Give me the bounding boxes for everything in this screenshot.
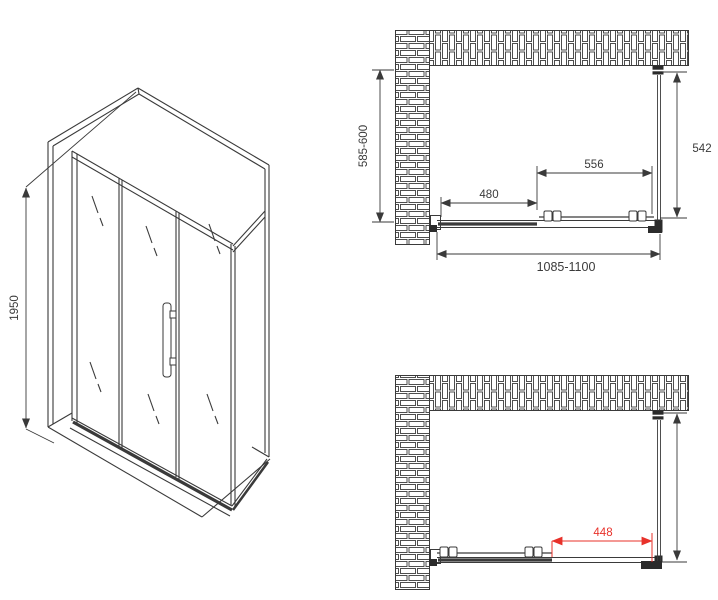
door-handle bbox=[163, 303, 176, 377]
glass-reflection-icon bbox=[92, 196, 103, 226]
glass-reflection-icon bbox=[209, 224, 220, 254]
iso-view: 1950 bbox=[9, 88, 270, 517]
wall-left bbox=[396, 376, 430, 590]
enclosure-plan bbox=[429, 66, 664, 234]
iso-tray bbox=[48, 418, 270, 517]
glass-reflection-icon bbox=[90, 362, 101, 392]
wall-left bbox=[396, 31, 430, 245]
drawing-svg: 1950 bbox=[0, 0, 718, 600]
roller bbox=[440, 547, 457, 557]
wall-back bbox=[430, 376, 689, 411]
dim-label-448: 448 bbox=[593, 527, 612, 539]
dim-side-unlabeled bbox=[662, 413, 687, 562]
dim-door-556: 556 bbox=[537, 159, 652, 214]
glass-reflection-icon bbox=[146, 226, 157, 256]
glass-reflection-icon bbox=[148, 394, 159, 424]
roller bbox=[525, 547, 542, 557]
open-plan-view: 448 bbox=[396, 376, 689, 590]
dim-label-480: 480 bbox=[479, 189, 498, 201]
glass-reflection-icon bbox=[207, 394, 218, 424]
iso-walls bbox=[48, 88, 269, 457]
dim-side-542: 542 bbox=[660, 72, 712, 218]
dim-depth-585-600: 585-600 bbox=[358, 70, 394, 222]
roller bbox=[544, 211, 561, 221]
glass-reflection-icons bbox=[90, 196, 220, 424]
dim-opening-448: 448 bbox=[552, 527, 652, 562]
dim-label-1085-1100: 1085-1100 bbox=[537, 260, 596, 274]
roller bbox=[629, 211, 646, 221]
dim-label-556: 556 bbox=[584, 159, 603, 171]
dim-label-585-600: 585-600 bbox=[358, 125, 370, 167]
dim-label-542: 542 bbox=[692, 143, 711, 155]
enclosure-plan-open bbox=[429, 411, 664, 570]
dim-label-1950: 1950 bbox=[9, 295, 21, 321]
top-plan-view: 585-600 542 556 480 1085-1100 bbox=[358, 31, 712, 275]
shower-enclosure-technical-drawing: 1950 bbox=[0, 0, 718, 600]
dim-width-1085-1100: 1085-1100 bbox=[437, 232, 660, 274]
dim-fixed-480: 480 bbox=[441, 189, 537, 217]
wall-back bbox=[430, 31, 689, 66]
